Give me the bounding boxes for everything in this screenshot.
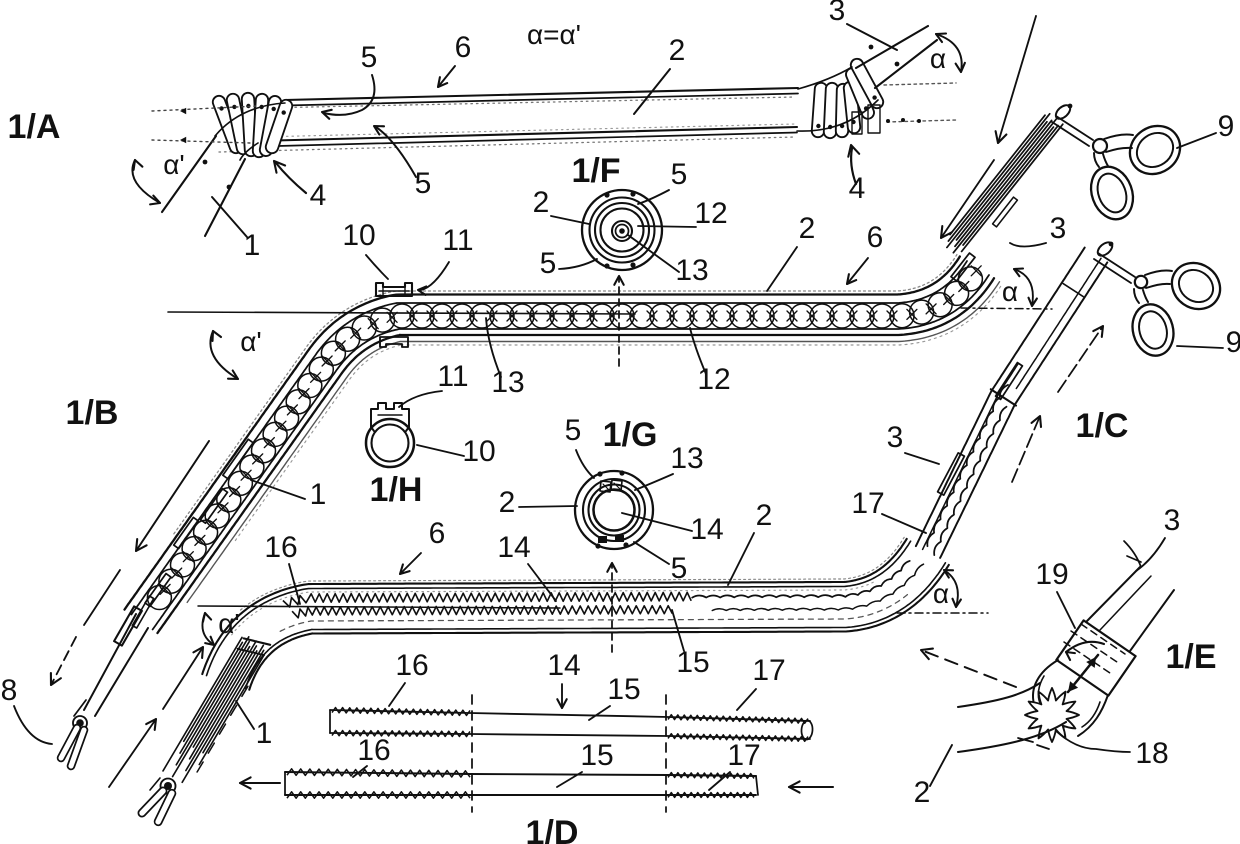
svg-text:3: 3: [1050, 212, 1067, 245]
svg-text:5: 5: [565, 414, 582, 447]
svg-text:1/G: 1/G: [603, 416, 658, 454]
svg-text:α: α: [930, 43, 946, 74]
svg-text:15: 15: [676, 646, 709, 679]
svg-text:5: 5: [540, 247, 557, 280]
svg-text:18: 18: [1135, 737, 1168, 770]
svg-text:10: 10: [462, 435, 495, 468]
svg-text:17: 17: [752, 654, 785, 687]
svg-text:15: 15: [580, 739, 613, 772]
svg-text:2: 2: [914, 776, 931, 809]
svg-text:6: 6: [867, 221, 884, 254]
svg-text:5: 5: [671, 158, 688, 191]
svg-text:11: 11: [442, 224, 473, 257]
svg-text:13: 13: [675, 254, 708, 287]
svg-text:3: 3: [1164, 504, 1181, 537]
svg-text:16: 16: [264, 531, 297, 564]
svg-text:1: 1: [244, 229, 261, 262]
svg-text:19: 19: [1035, 558, 1068, 591]
svg-text:17: 17: [727, 739, 760, 772]
svg-text:9: 9: [1218, 110, 1235, 143]
svg-text:5: 5: [361, 41, 378, 74]
svg-text:1/H: 1/H: [370, 471, 423, 509]
svg-text:2: 2: [499, 486, 516, 519]
svg-text:α': α': [218, 608, 240, 639]
svg-text:13: 13: [491, 366, 524, 399]
svg-text:α=α': α=α': [527, 19, 581, 50]
svg-text:1/F: 1/F: [571, 152, 620, 190]
svg-text:α: α: [933, 578, 949, 609]
svg-text:1/D: 1/D: [526, 814, 579, 844]
svg-text:1/C: 1/C: [1076, 407, 1129, 445]
svg-text:1/A: 1/A: [8, 108, 61, 146]
svg-text:2: 2: [533, 186, 550, 219]
svg-text:6: 6: [429, 517, 446, 550]
svg-text:9: 9: [1226, 326, 1240, 359]
svg-text:4: 4: [310, 179, 327, 212]
svg-text:16: 16: [357, 734, 390, 767]
svg-text:2: 2: [669, 34, 686, 67]
svg-text:14: 14: [690, 513, 723, 546]
svg-text:12: 12: [697, 363, 730, 396]
svg-text:α: α: [1002, 276, 1018, 307]
svg-text:12: 12: [694, 197, 727, 230]
svg-text:14: 14: [497, 531, 530, 564]
svg-text:4: 4: [849, 172, 866, 205]
svg-text:15: 15: [607, 673, 640, 706]
svg-text:α': α': [240, 326, 262, 357]
svg-text:1/E: 1/E: [1165, 638, 1216, 676]
svg-text:2: 2: [756, 499, 773, 532]
svg-text:13: 13: [670, 442, 703, 475]
svg-text:5: 5: [415, 167, 432, 200]
svg-text:6: 6: [455, 31, 472, 64]
svg-text:1: 1: [256, 717, 273, 750]
svg-text:3: 3: [829, 0, 846, 27]
svg-text:2: 2: [799, 212, 816, 245]
svg-text:1: 1: [310, 478, 327, 511]
svg-text:1/B: 1/B: [66, 394, 119, 432]
svg-text:11: 11: [437, 360, 468, 393]
svg-text:10: 10: [342, 219, 375, 252]
svg-text:3: 3: [887, 421, 904, 454]
svg-text:17: 17: [851, 487, 884, 520]
svg-text:α': α': [163, 149, 185, 180]
svg-text:14: 14: [547, 649, 580, 682]
svg-text:8: 8: [1, 674, 18, 707]
svg-text:16: 16: [395, 649, 428, 682]
